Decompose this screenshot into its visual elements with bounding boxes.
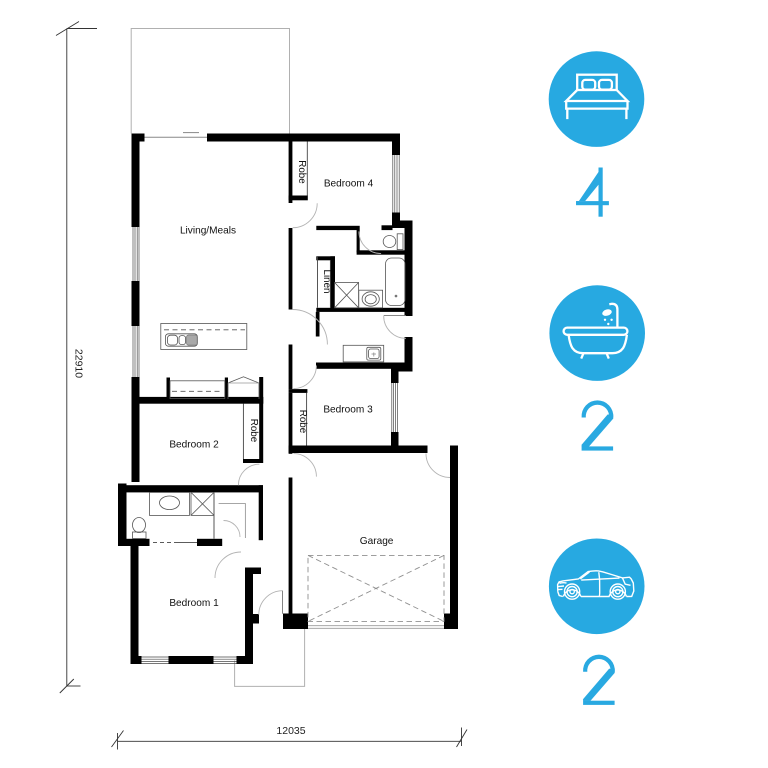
svg-text:12035: 12035 [276, 725, 305, 737]
svg-text:Bedroom 3: Bedroom 3 [323, 405, 373, 416]
svg-text:Garage: Garage [360, 536, 394, 547]
svg-text:Robe: Robe [297, 410, 308, 434]
svg-text:Linen: Linen [321, 270, 332, 294]
svg-text:Bedroom 2: Bedroom 2 [169, 440, 219, 451]
svg-text:Living/Meals: Living/Meals [180, 226, 236, 237]
svg-text:Bedroom 1: Bedroom 1 [169, 598, 219, 609]
svg-text:22910: 22910 [73, 349, 85, 378]
svg-text:Bedroom 4: Bedroom 4 [324, 179, 374, 190]
svg-text:Robe: Robe [296, 160, 307, 184]
svg-text:Robe: Robe [248, 419, 259, 443]
